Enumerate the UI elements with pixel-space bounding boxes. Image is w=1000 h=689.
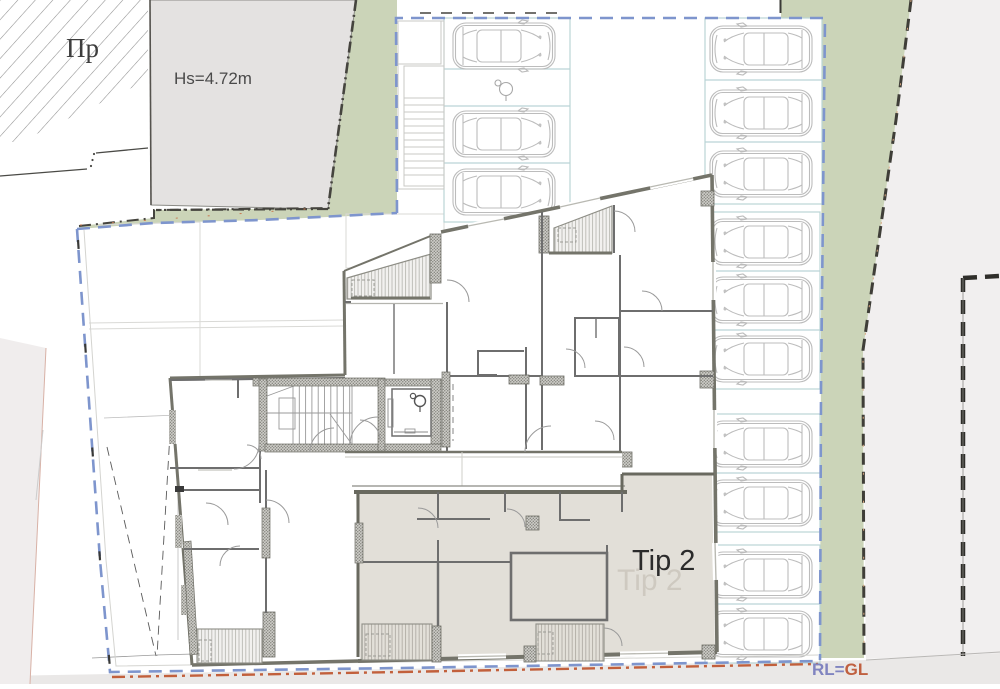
svg-text:Пр: Пр — [66, 33, 99, 63]
svg-text:RL=GL: RL=GL — [812, 660, 868, 679]
svg-text:Tip 2: Tip 2 — [632, 545, 695, 577]
svg-text:Hs=4.72m: Hs=4.72m — [174, 69, 252, 88]
